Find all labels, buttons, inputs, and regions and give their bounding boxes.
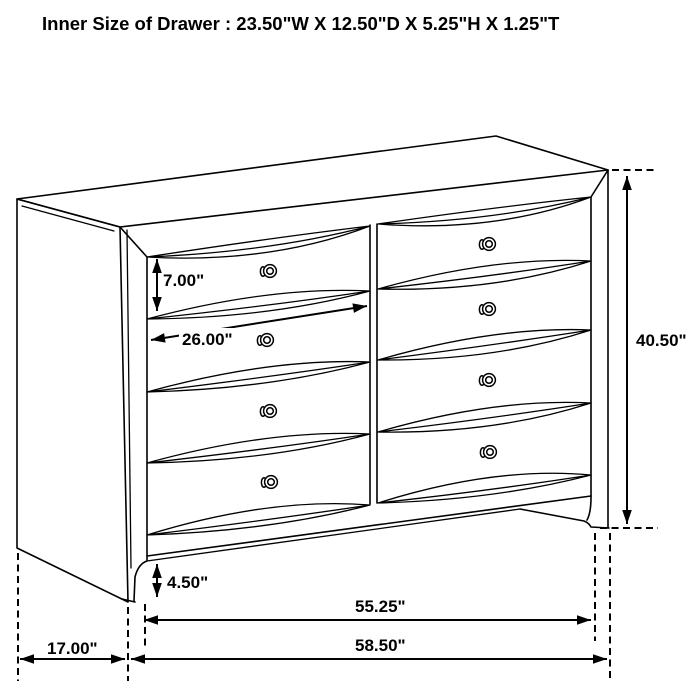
drawer-knob <box>260 265 276 278</box>
frame-right-stile-inner <box>587 197 591 520</box>
frame-center-stile <box>370 224 377 504</box>
diagram-canvas: Inner Size of Drawer : 23.50"W X 12.50"D… <box>0 0 700 700</box>
side-panel-front-edge <box>127 230 131 568</box>
extension-lines <box>18 170 658 682</box>
band0-left <box>147 226 370 258</box>
dimension-overall-width: 58.50" <box>131 636 607 659</box>
drawer-knob <box>480 446 496 459</box>
band2-left <box>147 362 370 392</box>
dimension-depth: 17.00" <box>20 639 125 659</box>
dresser-side-panel <box>17 199 128 602</box>
right-foot <box>520 509 609 528</box>
dresser-top-inner-edge <box>22 206 114 231</box>
dresser-top-surface <box>17 136 608 227</box>
diagram-title: Inner Size of Drawer : 23.50"W X 12.50"D… <box>42 13 560 34</box>
dimension-label-drawer-width: 26.00" <box>182 330 233 349</box>
drawer-knob <box>479 303 495 316</box>
dimension-label-overall-width: 58.50" <box>355 636 406 655</box>
apron-bottom <box>147 509 520 561</box>
top-bevel-right <box>591 170 608 197</box>
dimension-overall-height: 40.50" <box>627 176 687 524</box>
drawer-knob <box>257 334 273 347</box>
drawer-knob <box>260 405 276 418</box>
band1-left <box>147 290 370 319</box>
band0-right <box>378 197 591 226</box>
drawer-knob <box>479 374 495 387</box>
dimension-label-depth: 17.00" <box>47 639 98 658</box>
top-bevel-left <box>120 227 147 257</box>
band2-right <box>378 330 591 360</box>
dimension-label-front-width: 55.25" <box>355 597 406 616</box>
drawer-band-1 <box>147 260 591 319</box>
dimension-label-overall-height: 40.50" <box>636 331 687 350</box>
left-foot-bracket <box>134 561 147 601</box>
dimension-base-height: 4.50" <box>157 564 208 597</box>
dimension-drawer-height: 7.00" <box>157 259 204 311</box>
dimension-label-drawer-height: 7.00" <box>163 271 204 290</box>
drawer-band-3 <box>147 402 591 463</box>
drawer-knob <box>261 476 277 489</box>
drawer-band-top <box>147 197 591 258</box>
band3-left <box>147 433 370 463</box>
dimension-front-width: 55.25" <box>144 597 591 620</box>
band4-right <box>378 473 591 503</box>
band1-right <box>378 260 591 289</box>
dimension-label-base-height: 4.50" <box>167 573 208 592</box>
dresser-dimension-diagram: Inner Size of Drawer : 23.50"W X 12.50"D… <box>0 0 700 700</box>
drawer-knob <box>479 238 495 251</box>
band3-right <box>378 402 591 432</box>
dresser-drawing <box>17 136 609 602</box>
